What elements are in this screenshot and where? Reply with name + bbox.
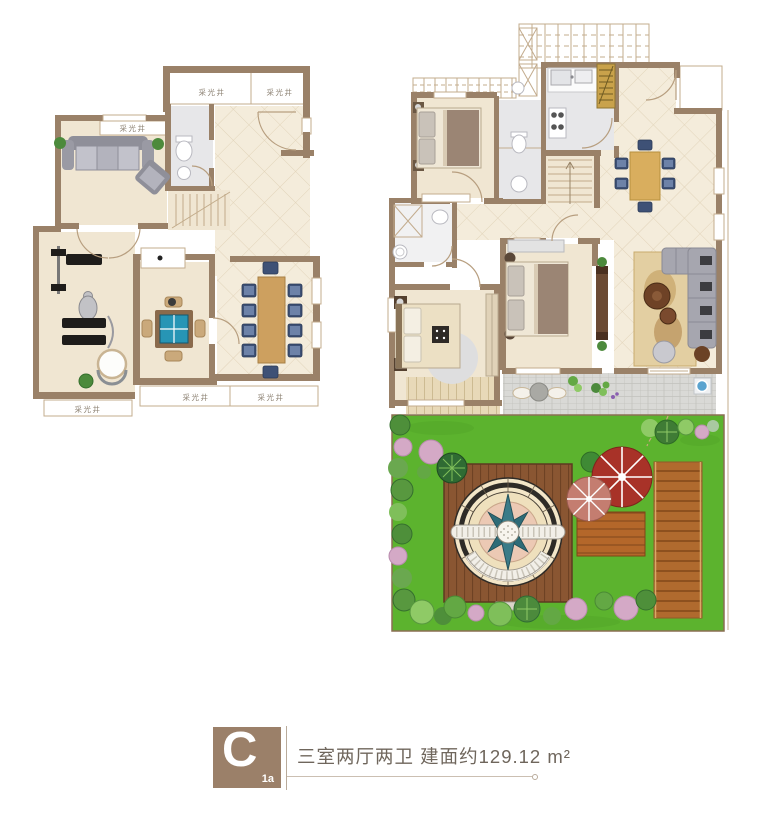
boardwalk [654, 462, 702, 618]
unit-letter: C [222, 722, 257, 778]
floorplan-sheet: 采光井 采光井 采光井 采光井 采光井 采光井 [0, 0, 760, 824]
stair-ladder [597, 64, 615, 108]
main-floor-plan [388, 24, 728, 631]
terrace-seat [548, 388, 566, 399]
plant [152, 138, 164, 150]
side-table [694, 346, 710, 362]
garden [388, 415, 724, 631]
pouf [653, 341, 675, 363]
legend-divider [286, 726, 287, 790]
legend-rule [287, 776, 532, 777]
basin [697, 381, 708, 392]
light-well-label: 采光井 [267, 87, 294, 97]
light-well-label: 采光井 [120, 123, 147, 133]
umbrella-small [567, 477, 611, 521]
light-well-label: 采光井 [258, 392, 285, 402]
toilet [432, 210, 448, 224]
unit-variant: 1a [262, 773, 274, 785]
washer [393, 245, 407, 259]
legend-rule-end-dot [532, 774, 538, 780]
lower-floor-plan: 采光井 采光井 采光井 采光井 采光井 采光井 [33, 66, 321, 416]
stove [549, 108, 566, 138]
unit-summary: 三室两厅两卫 建面约129.12 m² [297, 743, 571, 769]
sink [575, 70, 592, 83]
terrace-table [530, 383, 548, 401]
plant [79, 374, 93, 388]
light-well-label: 采光井 [183, 392, 210, 402]
dining-table [258, 277, 285, 363]
basin [178, 167, 191, 180]
tv-cabinet [596, 257, 608, 351]
dining-table [630, 152, 660, 200]
plant [597, 257, 607, 267]
toilet [512, 135, 526, 153]
terrace-seat [513, 388, 531, 399]
light-well-label: 采光井 [75, 404, 102, 414]
egg-chair [98, 350, 126, 378]
sink [551, 70, 571, 85]
unit-badge: C 1a [213, 727, 281, 788]
basin [512, 82, 524, 94]
coffee-table [660, 308, 676, 324]
light-well-label: 采光井 [199, 87, 226, 97]
plan-legend: C 1a 三室两厅两卫 建面约129.12 m² [213, 727, 553, 793]
basin [511, 176, 527, 192]
plant [54, 137, 66, 149]
plant [597, 341, 607, 351]
floorplan-drawing: 采光井 采光井 采光井 采光井 采光井 采光井 [0, 0, 760, 824]
living-room [634, 248, 716, 366]
